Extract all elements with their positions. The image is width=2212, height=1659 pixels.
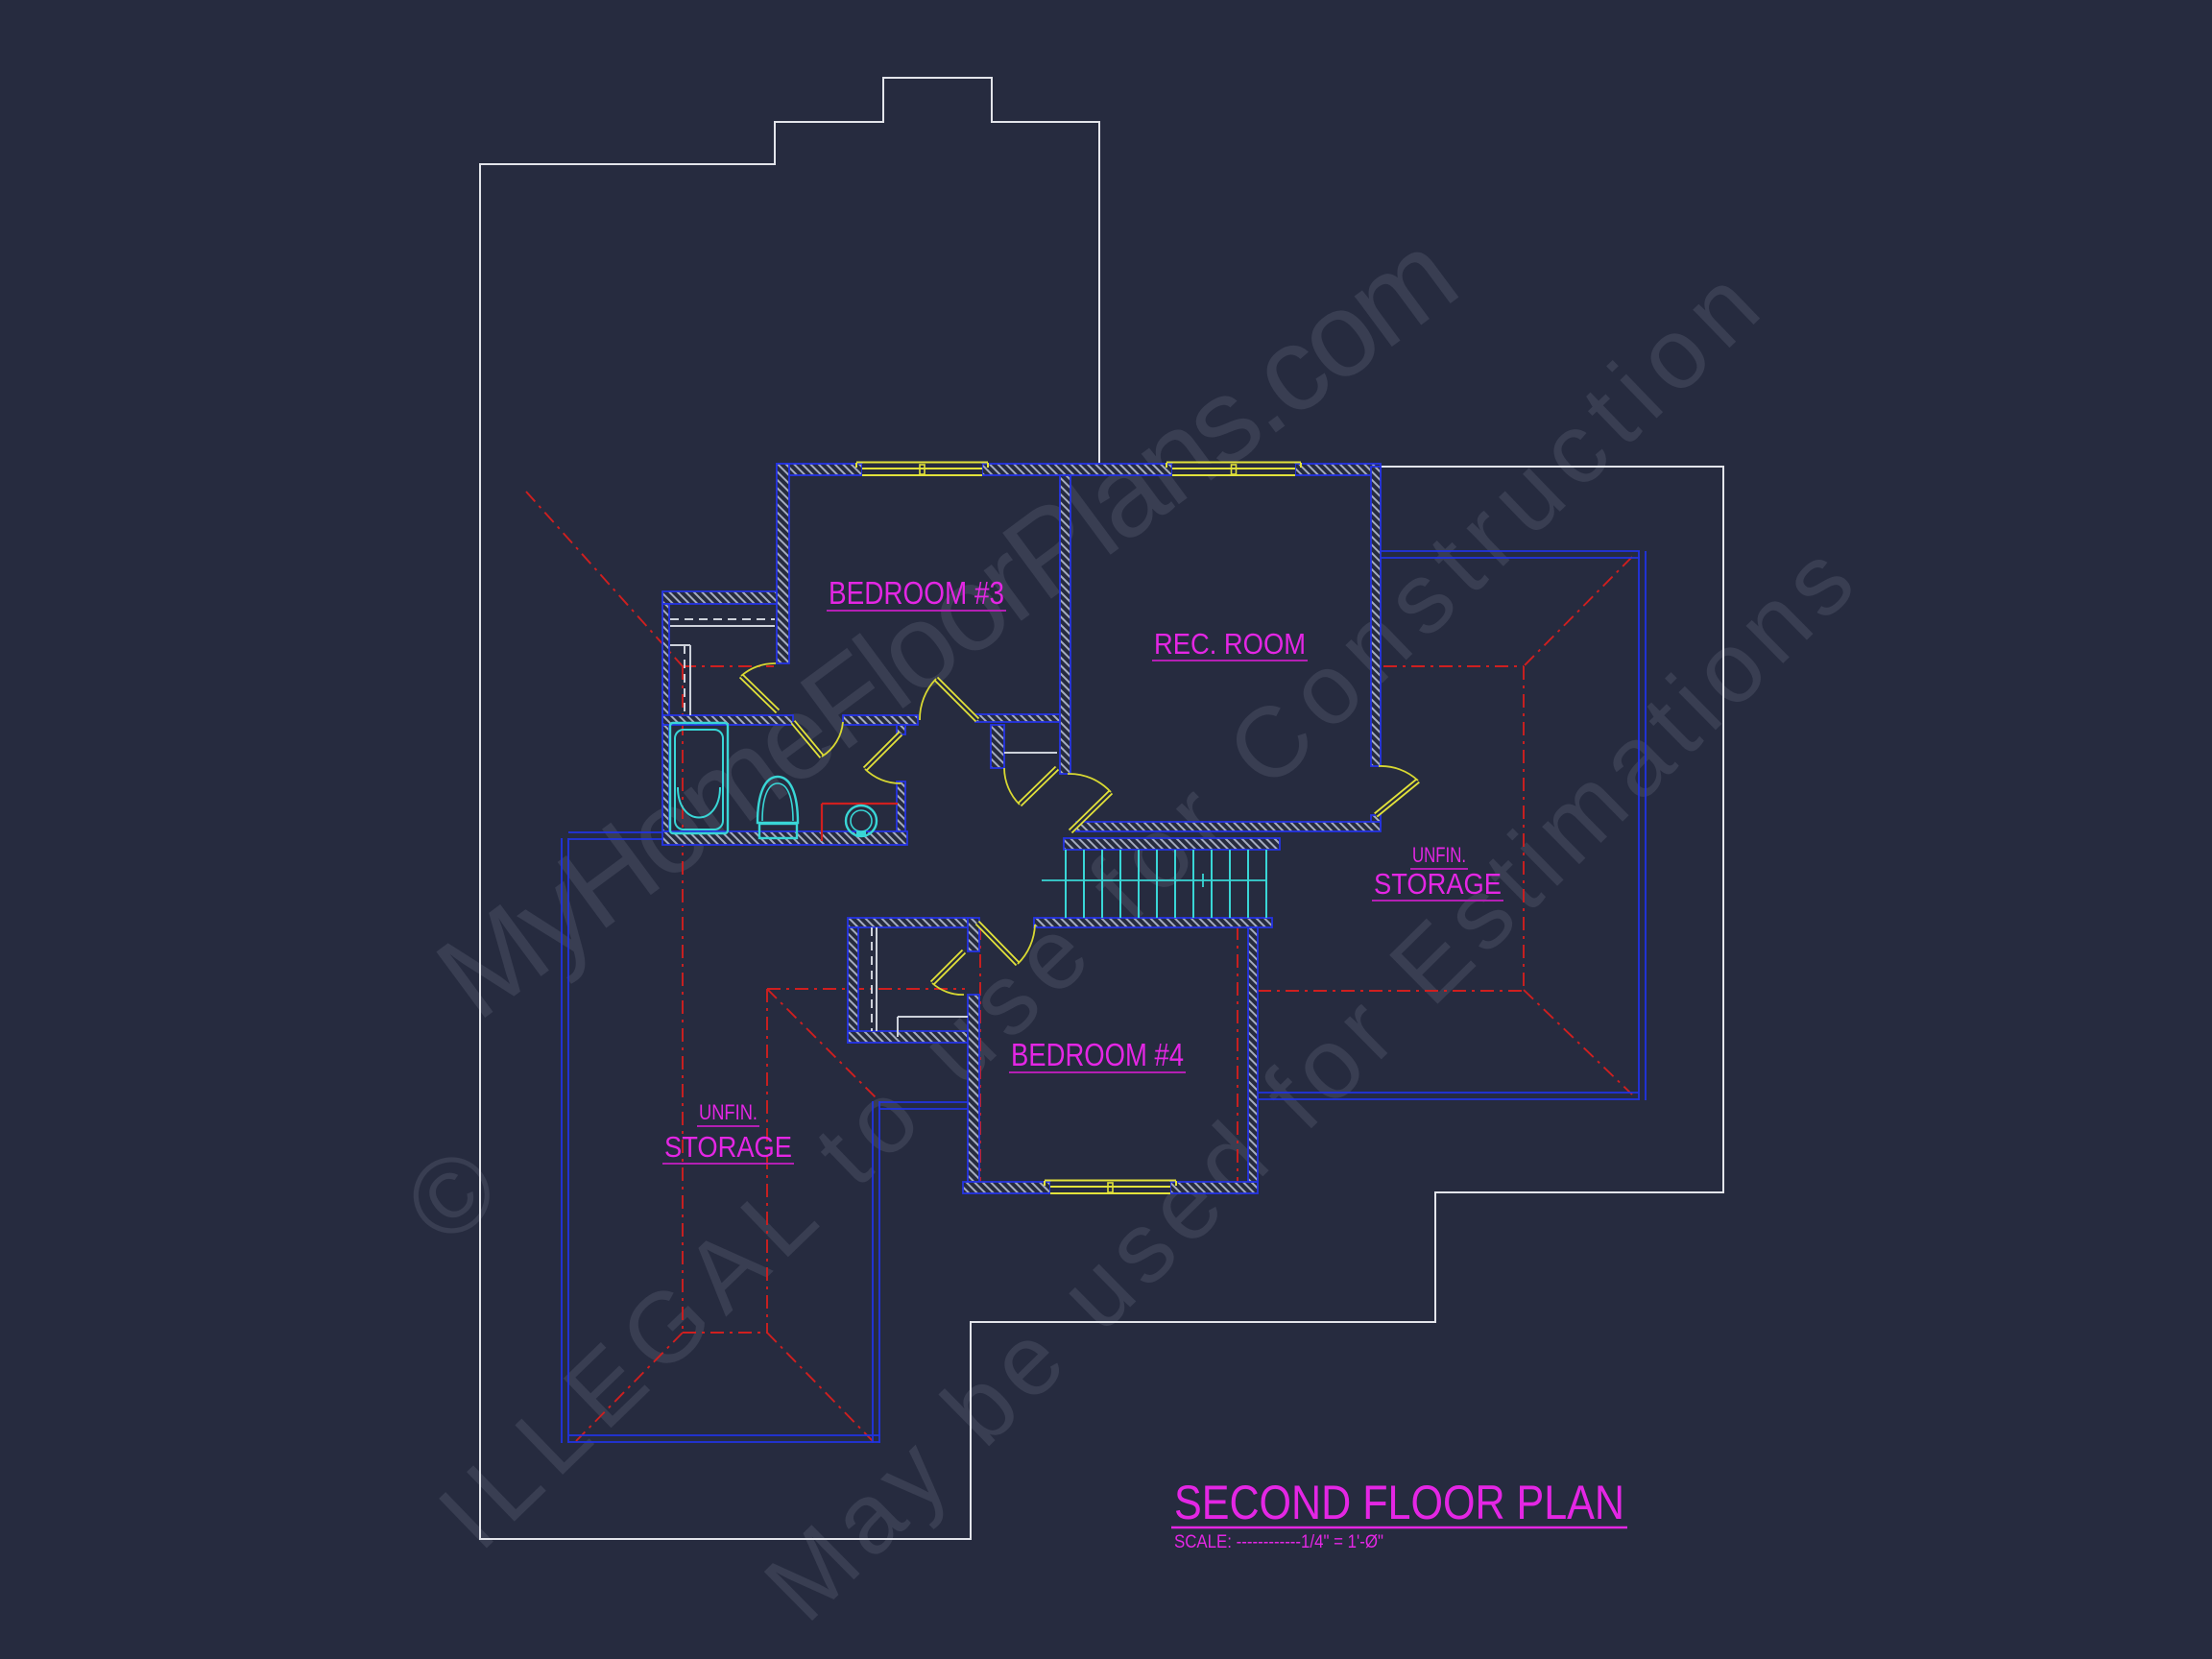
- svg-text:UNFIN.: UNFIN.: [1412, 843, 1466, 867]
- svg-text:STORAGE: STORAGE: [664, 1130, 792, 1164]
- svg-text:SECOND FLOOR PLAN: SECOND FLOOR PLAN: [1174, 1476, 1624, 1529]
- svg-text:SCALE: ------------1/4" = 1'-Ø: SCALE: ------------1/4" = 1'-Ø": [1174, 1532, 1383, 1552]
- svg-text:STORAGE: STORAGE: [1374, 867, 1502, 901]
- svg-text:BEDROOM #3: BEDROOM #3: [829, 575, 1004, 611]
- svg-text:UNFIN.: UNFIN.: [699, 1100, 757, 1124]
- svg-text:BEDROOM #4: BEDROOM #4: [1011, 1037, 1184, 1072]
- svg-text:REC. ROOM: REC. ROOM: [1154, 627, 1306, 661]
